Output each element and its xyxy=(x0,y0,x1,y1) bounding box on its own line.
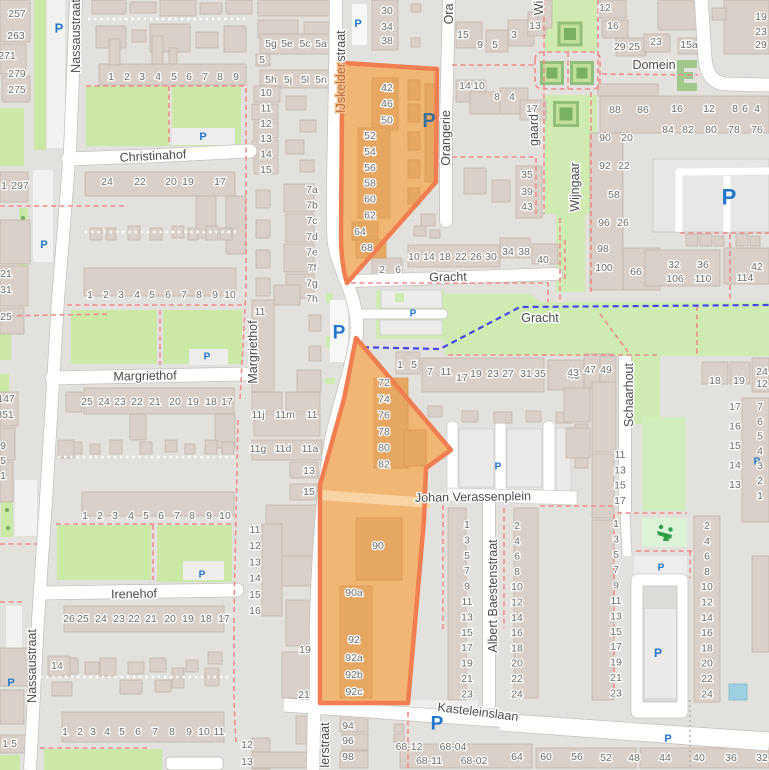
svg-text:6: 6 xyxy=(742,103,748,115)
svg-text:94: 94 xyxy=(342,720,354,732)
svg-text:68-11: 68-11 xyxy=(416,755,442,767)
svg-text:10: 10 xyxy=(219,510,231,522)
svg-text:6: 6 xyxy=(186,71,192,83)
svg-text:11a: 11a xyxy=(302,443,319,455)
svg-text:20: 20 xyxy=(511,658,523,670)
svg-text:30: 30 xyxy=(381,5,393,17)
svg-text:14: 14 xyxy=(51,660,63,672)
svg-text:297: 297 xyxy=(11,180,29,192)
svg-text:Ora: Ora xyxy=(442,4,456,25)
svg-text:5h: 5h xyxy=(265,74,277,86)
svg-text:147: 147 xyxy=(0,393,15,405)
svg-text:13: 13 xyxy=(249,556,261,568)
svg-text:12: 12 xyxy=(701,597,713,609)
svg-text:35: 35 xyxy=(521,169,533,181)
svg-text:P: P xyxy=(199,570,206,581)
svg-text:12: 12 xyxy=(260,118,272,130)
svg-text:76: 76 xyxy=(378,410,390,422)
svg-text:351: 351 xyxy=(0,409,14,421)
svg-text:14: 14 xyxy=(260,149,272,161)
svg-text:21: 21 xyxy=(145,613,157,625)
svg-text:32: 32 xyxy=(668,259,680,271)
svg-text:66: 66 xyxy=(630,266,642,278)
svg-text:8: 8 xyxy=(494,91,500,103)
svg-text:279: 279 xyxy=(8,68,26,80)
svg-text:24: 24 xyxy=(756,366,768,378)
svg-text:18: 18 xyxy=(439,251,451,263)
svg-text:1: 1 xyxy=(397,359,403,371)
svg-text:1: 1 xyxy=(82,510,88,522)
svg-text:21: 21 xyxy=(149,396,161,408)
svg-text:10: 10 xyxy=(224,289,236,301)
svg-text:11: 11 xyxy=(261,102,272,114)
svg-text:Wi: Wi xyxy=(532,1,546,16)
svg-text:P: P xyxy=(410,309,417,320)
svg-text:19: 19 xyxy=(182,176,194,188)
svg-text:11: 11 xyxy=(441,366,452,378)
svg-text:13: 13 xyxy=(610,610,622,622)
svg-text:3: 3 xyxy=(757,460,763,472)
svg-text:2: 2 xyxy=(704,520,710,532)
svg-text:5j: 5j xyxy=(284,74,292,86)
svg-text:Orangerie: Orangerie xyxy=(439,110,453,166)
svg-text:14: 14 xyxy=(459,80,471,92)
svg-text:3: 3 xyxy=(118,289,124,301)
svg-text:60: 60 xyxy=(540,751,552,763)
svg-text:82: 82 xyxy=(682,124,694,136)
svg-text:88: 88 xyxy=(609,104,621,116)
svg-text:14: 14 xyxy=(511,612,523,624)
svg-text:13: 13 xyxy=(461,611,473,623)
svg-text:35: 35 xyxy=(534,368,546,380)
svg-text:P: P xyxy=(204,352,211,363)
svg-text:20: 20 xyxy=(169,396,181,408)
svg-text:P: P xyxy=(664,733,671,745)
svg-text:25: 25 xyxy=(77,613,89,625)
svg-text:26: 26 xyxy=(617,217,629,229)
svg-text:96: 96 xyxy=(598,217,610,229)
svg-text:98: 98 xyxy=(342,751,354,763)
svg-text:8: 8 xyxy=(704,566,710,578)
svg-text:7d: 7d xyxy=(306,231,318,243)
svg-text:62: 62 xyxy=(364,210,376,222)
svg-text:9: 9 xyxy=(613,580,619,592)
svg-text:Margriethof: Margriethof xyxy=(113,368,177,383)
svg-text:12: 12 xyxy=(703,103,715,115)
svg-text:P: P xyxy=(40,239,47,251)
svg-text:1: 1 xyxy=(62,726,68,738)
svg-text:11m: 11m xyxy=(275,409,295,421)
svg-text:82: 82 xyxy=(378,459,390,471)
svg-text:25: 25 xyxy=(0,311,12,323)
svg-text:2: 2 xyxy=(77,726,83,738)
svg-text:11j: 11j xyxy=(251,409,264,421)
svg-text:9: 9 xyxy=(233,71,239,83)
svg-text:34: 34 xyxy=(502,246,514,258)
svg-text:23: 23 xyxy=(610,687,622,699)
svg-text:6: 6 xyxy=(757,416,763,428)
svg-text:Domein: Domein xyxy=(632,58,675,72)
svg-text:11: 11 xyxy=(255,306,266,318)
svg-text:10: 10 xyxy=(511,581,523,593)
svg-text:31: 31 xyxy=(0,284,12,296)
svg-text:68-12: 68-12 xyxy=(396,741,423,753)
svg-text:86: 86 xyxy=(637,104,649,116)
svg-text:263: 263 xyxy=(7,30,25,42)
svg-text:3: 3 xyxy=(613,533,619,545)
svg-text:16: 16 xyxy=(607,20,619,32)
svg-text:11: 11 xyxy=(611,595,622,607)
svg-text:17: 17 xyxy=(461,642,473,654)
svg-text:18: 18 xyxy=(709,375,721,387)
svg-text:P: P xyxy=(55,21,64,36)
svg-text:68: 68 xyxy=(361,242,373,254)
svg-text:92a: 92a xyxy=(345,652,363,664)
svg-text:17: 17 xyxy=(218,613,230,625)
svg-text:5: 5 xyxy=(613,549,619,561)
svg-text:11: 11 xyxy=(615,449,626,461)
svg-text:64: 64 xyxy=(511,751,523,763)
svg-text:92b: 92b xyxy=(345,669,363,681)
svg-text:11: 11 xyxy=(214,726,225,738)
svg-text:14: 14 xyxy=(729,460,741,472)
svg-text:1: 1 xyxy=(2,738,8,750)
svg-text:16: 16 xyxy=(671,103,683,115)
svg-text:271: 271 xyxy=(0,50,16,62)
svg-text:24: 24 xyxy=(95,613,107,625)
svg-text:58: 58 xyxy=(364,178,376,190)
svg-text:11: 11 xyxy=(307,409,318,421)
svg-text:36: 36 xyxy=(725,752,737,764)
svg-text:14: 14 xyxy=(701,612,713,624)
svg-text:275: 275 xyxy=(8,84,26,96)
svg-text:48: 48 xyxy=(628,752,640,764)
svg-text:lerstraat: lerstraat xyxy=(318,722,332,768)
svg-text:9: 9 xyxy=(212,289,218,301)
svg-text:24: 24 xyxy=(98,396,110,408)
svg-text:5: 5 xyxy=(411,359,417,371)
svg-text:23: 23 xyxy=(113,613,125,625)
svg-text:15a: 15a xyxy=(680,39,698,51)
svg-text:19: 19 xyxy=(470,368,482,380)
svg-text:2: 2 xyxy=(514,520,520,532)
svg-text:12: 12 xyxy=(511,597,523,609)
svg-text:39: 39 xyxy=(521,186,533,198)
svg-text:16: 16 xyxy=(249,605,261,617)
svg-text:1: 1 xyxy=(87,289,93,301)
svg-text:7: 7 xyxy=(613,564,619,576)
svg-text:17: 17 xyxy=(610,641,622,653)
svg-text:7a: 7a xyxy=(306,184,318,196)
svg-text:6: 6 xyxy=(704,551,710,563)
svg-text:2: 2 xyxy=(124,71,130,83)
svg-text:56: 56 xyxy=(364,162,376,174)
svg-text:92: 92 xyxy=(348,634,360,646)
svg-text:14: 14 xyxy=(423,251,435,263)
svg-text:Gracht: Gracht xyxy=(429,270,467,285)
svg-text:56: 56 xyxy=(571,751,583,763)
svg-text:76: 76 xyxy=(751,124,763,136)
svg-text:257: 257 xyxy=(8,8,26,20)
svg-text:8: 8 xyxy=(514,566,520,578)
svg-text:13: 13 xyxy=(260,133,272,145)
svg-text:58: 58 xyxy=(608,189,620,201)
svg-text:17: 17 xyxy=(729,401,741,413)
svg-text:5c: 5c xyxy=(299,38,310,50)
svg-text:23: 23 xyxy=(461,688,473,700)
svg-text:Schaarhout: Schaarhout xyxy=(622,363,636,427)
svg-text:1: 1 xyxy=(464,519,470,531)
svg-text:98: 98 xyxy=(597,243,609,255)
svg-text:18: 18 xyxy=(701,642,713,654)
svg-text:19: 19 xyxy=(187,396,199,408)
svg-text:17: 17 xyxy=(456,372,468,384)
svg-text:29 25: 29 25 xyxy=(614,41,640,53)
svg-text:96: 96 xyxy=(342,735,354,747)
svg-text:2: 2 xyxy=(103,289,109,301)
svg-text:5e: 5e xyxy=(281,38,293,50)
svg-text:20: 20 xyxy=(701,658,713,670)
svg-text:5n: 5n xyxy=(315,74,327,86)
svg-text:13: 13 xyxy=(303,465,315,477)
svg-text:11d: 11d xyxy=(275,443,292,455)
svg-text:1: 1 xyxy=(613,518,619,530)
svg-text:36: 36 xyxy=(697,259,709,271)
svg-text:4: 4 xyxy=(509,91,515,103)
svg-text:Nassaustraat: Nassaustraat xyxy=(69,0,83,73)
svg-text:8: 8 xyxy=(196,289,202,301)
svg-text:11: 11 xyxy=(250,524,261,536)
svg-text:9: 9 xyxy=(0,440,6,452)
svg-text:14: 14 xyxy=(249,573,261,585)
svg-text:20: 20 xyxy=(621,132,633,144)
svg-text:34: 34 xyxy=(381,21,393,33)
svg-text:16: 16 xyxy=(729,421,741,433)
svg-text:19: 19 xyxy=(733,375,745,387)
svg-text:68-04: 68-04 xyxy=(440,741,467,753)
svg-text:21: 21 xyxy=(298,689,310,701)
svg-text:9: 9 xyxy=(186,726,192,738)
svg-text:40: 40 xyxy=(693,752,705,764)
svg-text:7: 7 xyxy=(202,71,208,83)
svg-text:Johan Verassenplein: Johan Verassenplein xyxy=(415,489,531,505)
svg-text:3: 3 xyxy=(139,71,145,83)
svg-text:P: P xyxy=(199,131,206,143)
svg-text:24: 24 xyxy=(101,176,113,188)
svg-text:40: 40 xyxy=(537,254,549,266)
svg-text:80: 80 xyxy=(705,124,717,136)
svg-text:P: P xyxy=(7,677,14,689)
svg-text:20: 20 xyxy=(164,613,176,625)
svg-text:2: 2 xyxy=(97,510,103,522)
svg-text:30: 30 xyxy=(485,251,497,263)
svg-text:5: 5 xyxy=(119,726,125,738)
svg-text:Margriethof: Margriethof xyxy=(246,320,260,384)
svg-text:21: 21 xyxy=(0,268,12,280)
svg-text:P: P xyxy=(658,563,665,574)
svg-text:50: 50 xyxy=(381,114,393,126)
svg-text:31: 31 xyxy=(520,368,532,380)
svg-text:2: 2 xyxy=(379,264,385,276)
svg-text:38: 38 xyxy=(381,35,393,47)
svg-text:10: 10 xyxy=(701,581,713,593)
svg-text:10: 10 xyxy=(260,87,272,99)
svg-text:90a: 90a xyxy=(345,587,363,599)
svg-text:4: 4 xyxy=(754,103,760,115)
svg-text:16: 16 xyxy=(701,627,713,639)
svg-text:4: 4 xyxy=(128,510,134,522)
svg-text:5: 5 xyxy=(149,289,155,301)
svg-text:8: 8 xyxy=(169,726,175,738)
svg-text:26: 26 xyxy=(63,613,75,625)
svg-text:17: 17 xyxy=(526,103,538,115)
svg-text:19: 19 xyxy=(610,657,622,669)
svg-text:19: 19 xyxy=(755,11,767,23)
svg-text:12: 12 xyxy=(599,2,611,14)
svg-text:10: 10 xyxy=(408,251,420,263)
svg-text:15: 15 xyxy=(461,627,473,639)
svg-text:47: 47 xyxy=(584,364,596,376)
svg-text:P: P xyxy=(495,462,502,473)
svg-text:11g: 11g xyxy=(250,443,267,455)
svg-text:7c: 7c xyxy=(306,215,317,227)
svg-text:23: 23 xyxy=(755,26,767,38)
svg-text:4: 4 xyxy=(704,535,710,547)
svg-text:9: 9 xyxy=(464,581,470,593)
svg-text:22: 22 xyxy=(701,673,713,685)
svg-text:114: 114 xyxy=(737,272,754,284)
svg-text:13: 13 xyxy=(614,464,626,476)
svg-text:P: P xyxy=(333,323,346,344)
svg-text:4: 4 xyxy=(104,726,110,738)
svg-text:4: 4 xyxy=(514,535,520,547)
svg-text:43: 43 xyxy=(567,367,579,379)
svg-text:15: 15 xyxy=(249,589,261,601)
svg-text:19: 19 xyxy=(299,644,311,656)
svg-text:92c: 92c xyxy=(346,686,363,698)
svg-text:78: 78 xyxy=(378,426,390,438)
svg-text:straat: straat xyxy=(334,30,348,62)
svg-text:3: 3 xyxy=(464,534,470,546)
svg-text:4: 4 xyxy=(757,445,763,457)
svg-text:64: 64 xyxy=(354,226,366,238)
svg-text:26: 26 xyxy=(470,251,482,263)
svg-text:110: 110 xyxy=(695,273,712,285)
svg-text:18: 18 xyxy=(200,613,212,625)
svg-text:Albert Baestenstraat: Albert Baestenstraat xyxy=(486,539,500,653)
svg-text:22: 22 xyxy=(134,176,146,188)
svg-text:15: 15 xyxy=(729,440,741,452)
svg-text:1: 1 xyxy=(0,470,6,482)
svg-text:23: 23 xyxy=(650,36,662,48)
svg-text:6: 6 xyxy=(514,551,520,563)
svg-text:3: 3 xyxy=(90,726,96,738)
svg-text:17: 17 xyxy=(221,396,233,408)
svg-text:84: 84 xyxy=(662,124,674,136)
svg-text:6: 6 xyxy=(135,726,141,738)
svg-text:80: 80 xyxy=(378,442,390,454)
svg-text:4: 4 xyxy=(134,289,140,301)
svg-text:72: 72 xyxy=(378,377,390,389)
svg-text:5: 5 xyxy=(464,550,470,562)
svg-text:P: P xyxy=(654,646,662,660)
svg-text:1: 1 xyxy=(1,180,7,192)
svg-text:12: 12 xyxy=(756,378,768,390)
svg-text:7: 7 xyxy=(757,401,763,413)
svg-text:10: 10 xyxy=(198,726,210,738)
svg-text:12: 12 xyxy=(241,739,253,751)
svg-text:7: 7 xyxy=(427,366,433,378)
svg-text:24: 24 xyxy=(701,688,713,700)
svg-text:74: 74 xyxy=(378,393,390,405)
svg-text:13: 13 xyxy=(729,479,741,491)
svg-text:5: 5 xyxy=(0,455,6,467)
svg-text:Wijngaar: Wijngaar xyxy=(568,162,582,211)
svg-text:8: 8 xyxy=(732,103,738,115)
svg-text:17: 17 xyxy=(214,176,226,188)
svg-text:24: 24 xyxy=(511,688,523,700)
svg-text:19: 19 xyxy=(461,658,473,670)
svg-text:25: 25 xyxy=(81,396,93,408)
svg-text:3: 3 xyxy=(511,29,517,41)
svg-text:7: 7 xyxy=(152,726,158,738)
svg-text:12: 12 xyxy=(249,540,261,552)
svg-text:17: 17 xyxy=(614,495,626,507)
svg-text:7: 7 xyxy=(464,565,470,577)
svg-text:106: 106 xyxy=(666,273,684,285)
svg-text:Gracht: Gracht xyxy=(521,311,559,325)
svg-text:52: 52 xyxy=(600,752,612,764)
svg-text:15: 15 xyxy=(610,626,622,638)
svg-text:18: 18 xyxy=(205,396,217,408)
svg-text:4: 4 xyxy=(155,71,161,83)
svg-text:P: P xyxy=(354,18,361,30)
svg-text:8: 8 xyxy=(217,71,223,83)
svg-text:5a: 5a xyxy=(315,38,327,50)
svg-text:5: 5 xyxy=(757,431,763,443)
svg-text:32: 32 xyxy=(756,752,768,764)
svg-text:21: 21 xyxy=(461,673,473,685)
svg-text:46: 46 xyxy=(381,98,393,110)
svg-text:5g: 5g xyxy=(265,38,277,50)
svg-text:21: 21 xyxy=(610,672,622,684)
svg-text:100: 100 xyxy=(595,262,613,274)
svg-text:27: 27 xyxy=(502,368,514,380)
svg-text:Nassaustraat: Nassaustraat xyxy=(25,629,39,703)
svg-text:7: 7 xyxy=(181,289,187,301)
svg-text:6: 6 xyxy=(165,289,171,301)
svg-text:90: 90 xyxy=(372,540,384,552)
svg-text:5: 5 xyxy=(171,71,177,83)
svg-text:42: 42 xyxy=(381,82,393,94)
svg-text:P: P xyxy=(422,110,435,132)
svg-text:5: 5 xyxy=(143,510,149,522)
svg-text:5l: 5l xyxy=(301,74,309,86)
svg-text:15: 15 xyxy=(457,29,469,41)
svg-text:15: 15 xyxy=(303,486,315,498)
svg-text:15: 15 xyxy=(614,480,626,492)
svg-text:19: 19 xyxy=(182,613,194,625)
svg-text:29: 29 xyxy=(755,39,767,51)
svg-text:13: 13 xyxy=(241,756,253,768)
svg-text:7b: 7b xyxy=(306,200,318,212)
svg-text:22: 22 xyxy=(128,613,140,625)
svg-text:68-02: 68-02 xyxy=(461,755,488,767)
svg-text:13: 13 xyxy=(529,20,541,32)
svg-text:9: 9 xyxy=(477,39,483,51)
svg-text:16: 16 xyxy=(511,627,523,639)
svg-text:52: 52 xyxy=(364,130,376,142)
